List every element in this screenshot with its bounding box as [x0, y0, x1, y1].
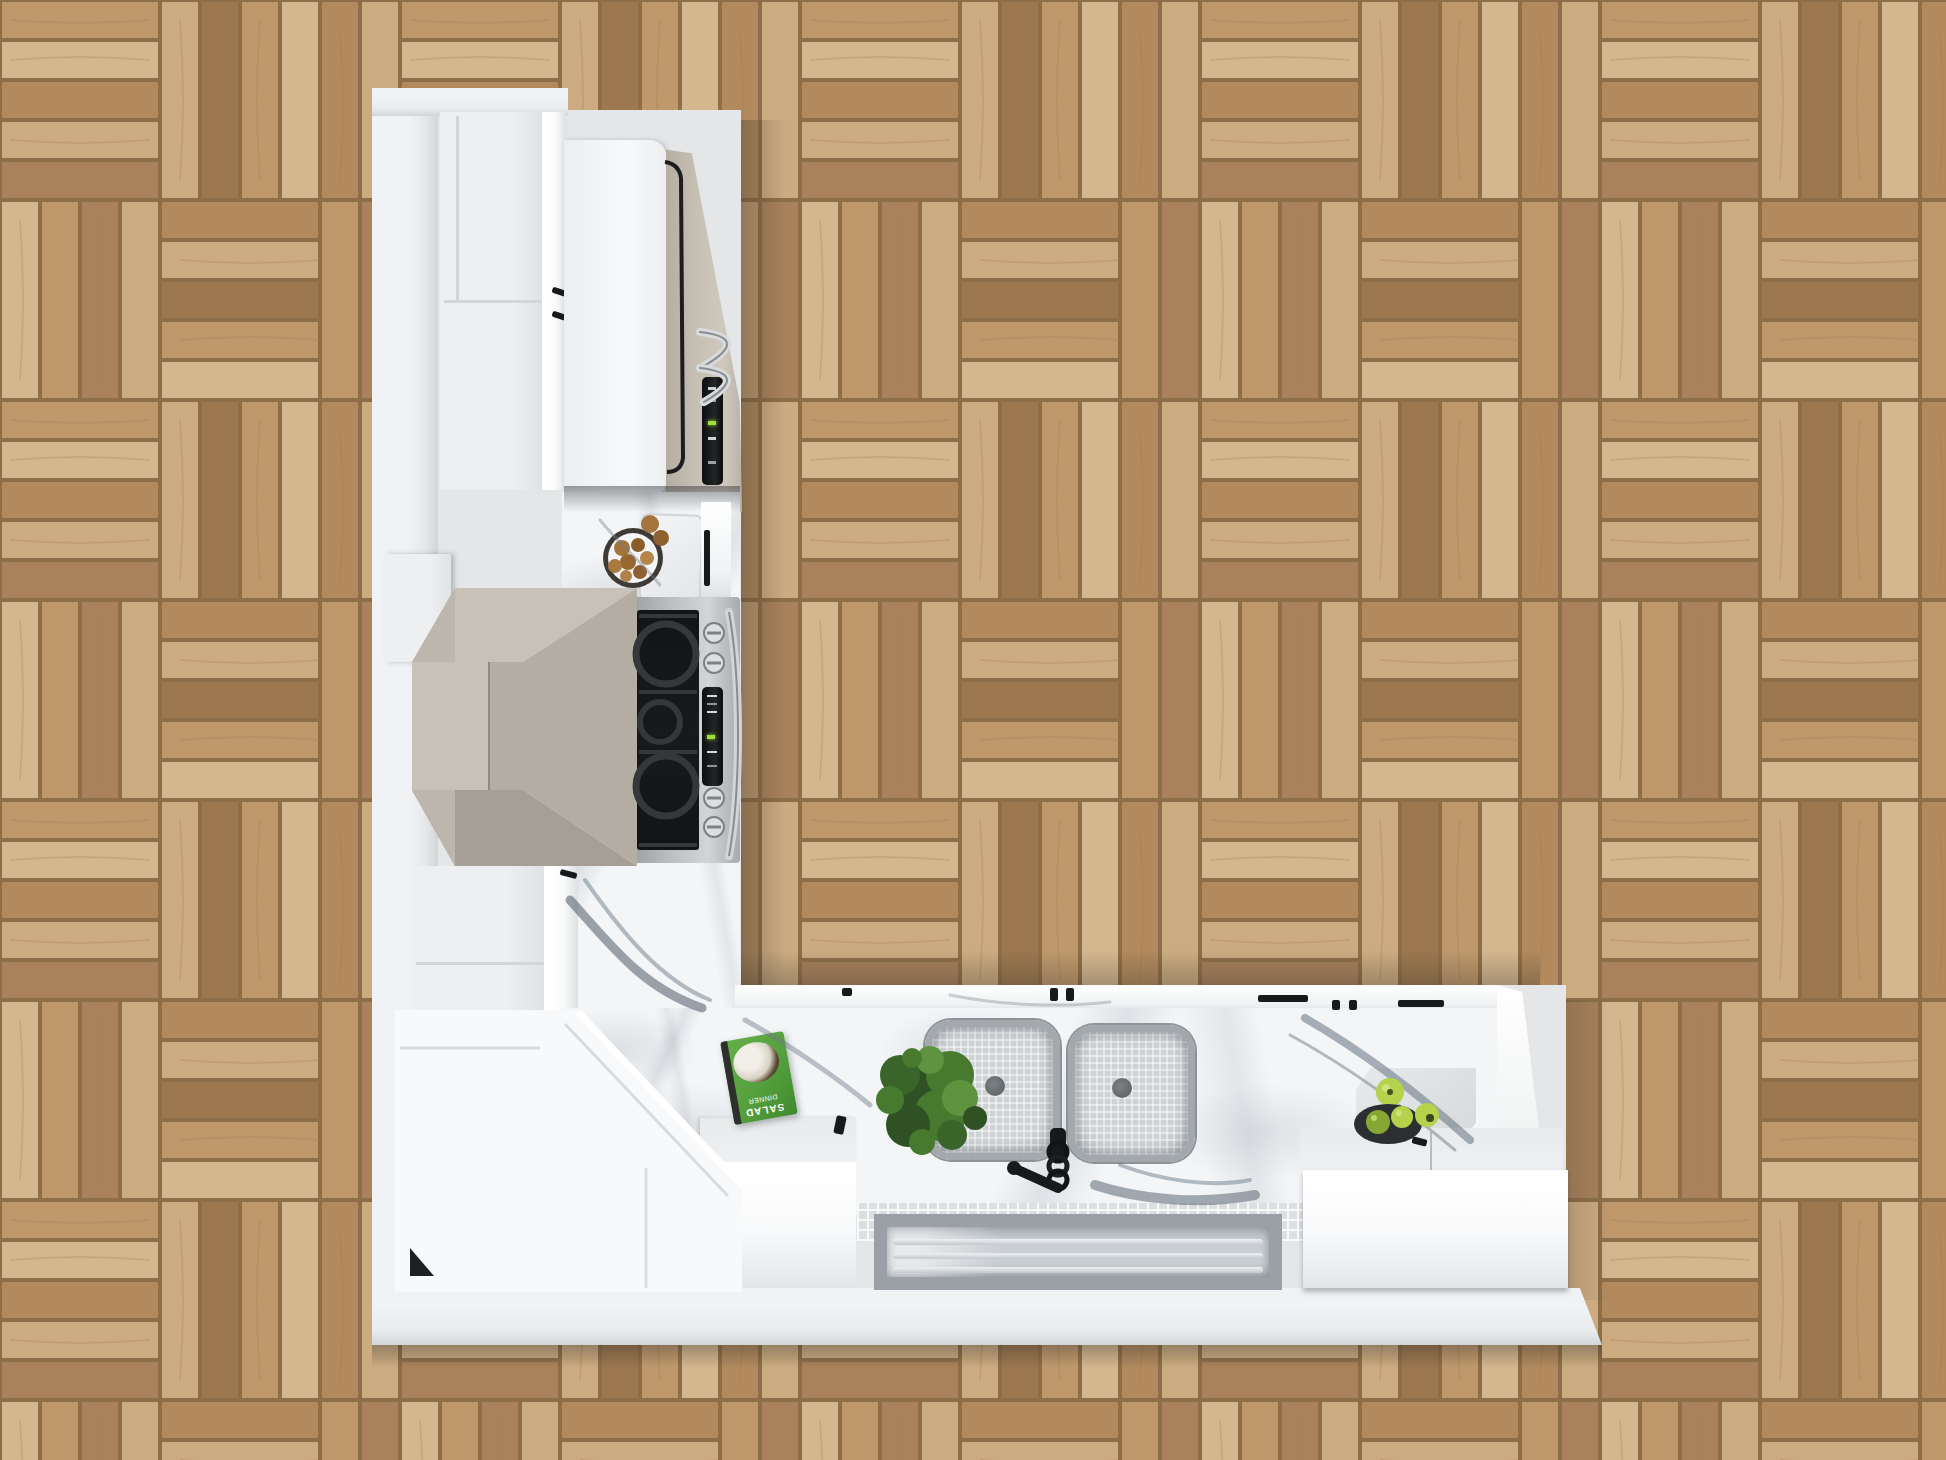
upper-cabinet-south: [412, 866, 544, 1066]
cooktop-grates: [637, 610, 699, 850]
fridge-control-panel: [702, 377, 723, 485]
cutting-board: [638, 513, 703, 603]
drawer-handle-icon: [704, 530, 710, 586]
salad-photo: [730, 1039, 782, 1086]
kitchen-render: SALAD DINNER: [0, 0, 1946, 1460]
island-drawer-handle-icon: [1349, 1000, 1357, 1010]
island-drawer-handle-icon: [1050, 988, 1058, 1001]
storage-box-front: [1303, 1170, 1568, 1288]
back-wall-strip: [372, 88, 440, 1345]
tall-pantry-cabinet-front-edge: [542, 112, 566, 490]
island-drawer-handle-icon: [1258, 995, 1308, 1002]
glass-front-panel: [874, 1214, 1282, 1290]
drain-icon: [1112, 1078, 1132, 1098]
range-display: [702, 687, 723, 786]
sink-right-basin: [1068, 1025, 1195, 1162]
corner-box-top: [700, 1118, 856, 1164]
refrigerator-top: [564, 140, 666, 497]
island-drawer-handle-icon: [842, 988, 852, 996]
upper-cabinet-north: [385, 554, 451, 662]
island-drawer-handle-icon: [1332, 1000, 1340, 1010]
bottom-plinth: [372, 1288, 1602, 1345]
corner-box-front: [700, 1162, 856, 1288]
drain-icon: [985, 1076, 1005, 1096]
island-drawer-handle-icon: [1398, 1000, 1444, 1007]
island-drawer-handle-icon: [1066, 988, 1074, 1001]
